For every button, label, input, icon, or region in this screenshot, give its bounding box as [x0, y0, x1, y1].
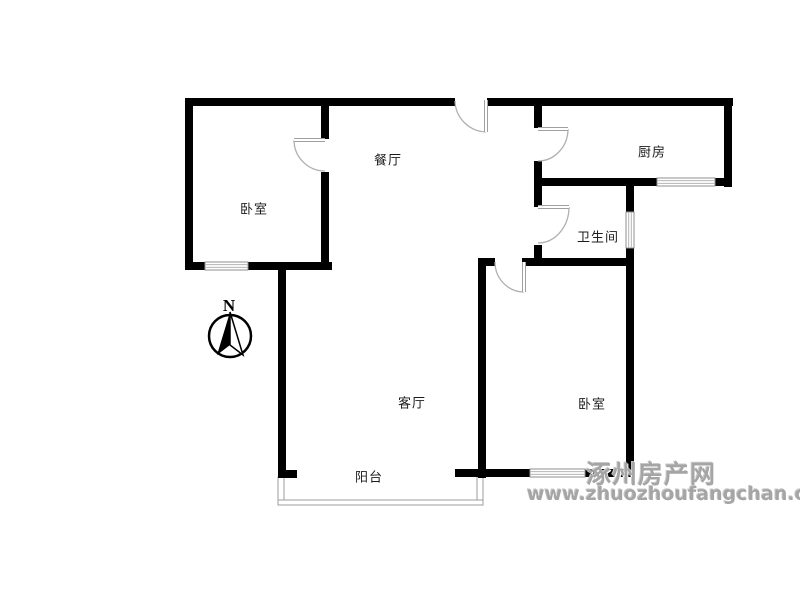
wall: [321, 98, 329, 139]
room-label-bathroom: 卫生间: [577, 227, 619, 246]
wall: [185, 98, 455, 106]
window: [626, 212, 634, 248]
room-label-dining: 餐厅: [374, 150, 402, 169]
room-label-balcony: 阳台: [355, 467, 383, 486]
window: [530, 469, 585, 477]
wall: [185, 262, 205, 270]
room-label-bedroom-left: 卧室: [240, 199, 268, 218]
wall: [487, 98, 733, 106]
door-swing-arc: [294, 140, 325, 171]
window: [205, 262, 248, 270]
room-label-bedroom-right: 卧室: [578, 394, 606, 413]
wall: [455, 469, 530, 477]
floor-plan-drawing: N: [0, 0, 800, 600]
wall: [715, 178, 732, 186]
wall: [478, 258, 486, 478]
room-label-kitchen: 厨房: [638, 142, 666, 161]
wall: [626, 186, 634, 212]
wall: [278, 263, 286, 478]
room-label-living: 客厅: [398, 393, 426, 412]
door-swing-arc: [538, 207, 569, 243]
door-swing-arc: [538, 129, 568, 161]
window: [657, 178, 715, 186]
door-swing-arc: [455, 101, 486, 132]
door-swing-arc: [495, 262, 524, 292]
wall: [626, 248, 634, 477]
wall: [321, 172, 329, 270]
north-compass: N: [209, 296, 251, 357]
wall: [534, 178, 657, 186]
wall: [278, 470, 297, 478]
floor-plan-canvas: N 卧室 餐厅 厨房 卫生间 客厅 卧室 阳台 涿州房产网 www.zhuozh…: [0, 0, 800, 600]
watermark-url: www.zhuozhoufangchan.com: [527, 483, 800, 505]
wall: [248, 262, 332, 270]
wall: [185, 98, 193, 270]
balcony-rail: [278, 500, 483, 505]
wall: [534, 98, 542, 128]
wall: [522, 258, 634, 266]
wall: [724, 98, 732, 187]
